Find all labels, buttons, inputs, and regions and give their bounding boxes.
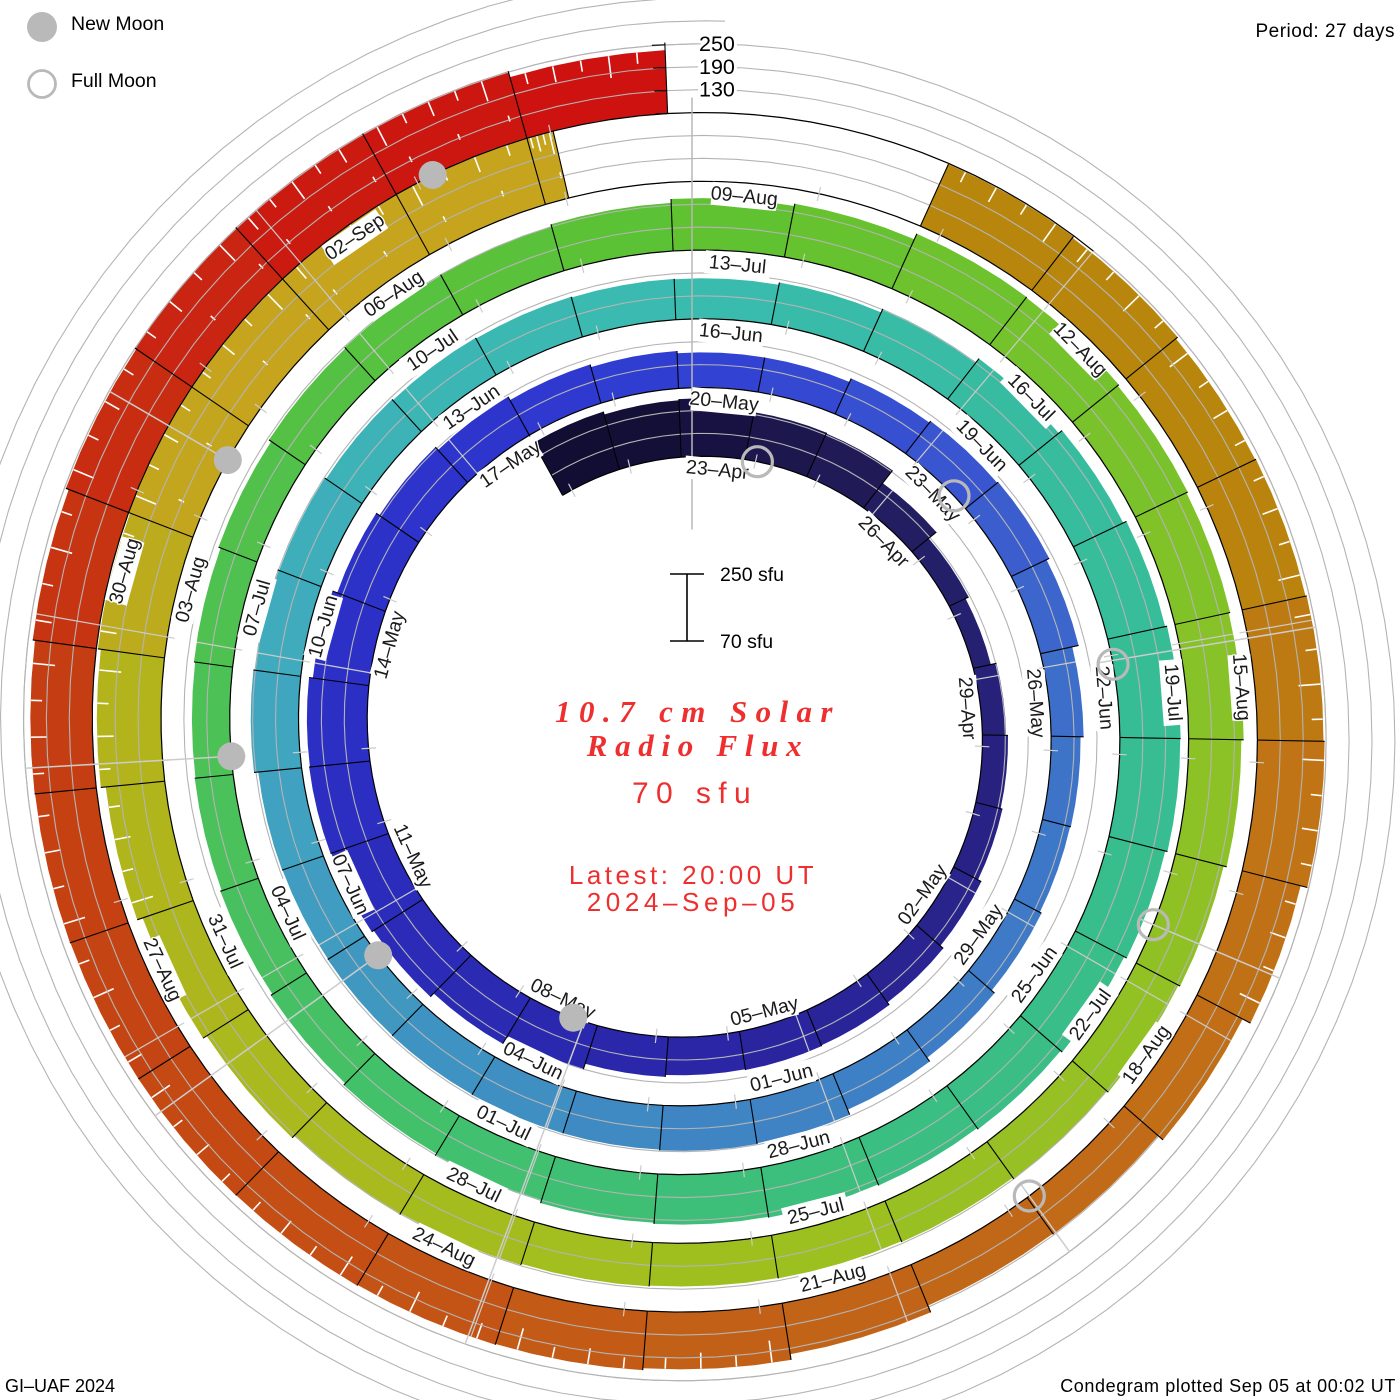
svg-text:GI–UAF 2024: GI–UAF 2024 — [5, 1376, 115, 1396]
svg-text:2024–Sep–05: 2024–Sep–05 — [587, 887, 800, 917]
svg-text:Period: 27 days: Period: 27 days — [1255, 21, 1395, 42]
svg-text:250: 250 — [699, 32, 735, 56]
svg-text:10.7 cm Solar: 10.7 cm Solar — [555, 694, 841, 729]
svg-text:70 sfu: 70 sfu — [720, 631, 773, 653]
svg-text:Latest: 20:00 UT: Latest: 20:00 UT — [569, 860, 817, 890]
svg-text:190: 190 — [699, 55, 735, 79]
svg-text:70 sfu: 70 sfu — [632, 777, 758, 810]
svg-text:Radio Flux: Radio Flux — [586, 728, 810, 763]
svg-text:19–Jul: 19–Jul — [1160, 663, 1186, 722]
svg-text:130: 130 — [699, 78, 735, 102]
svg-text:250 sfu: 250 sfu — [720, 564, 784, 586]
svg-text:Full Moon: Full Moon — [71, 70, 157, 92]
svg-text:New Moon: New Moon — [71, 13, 164, 35]
svg-text:Condegram plotted Sep 05 at 00: Condegram plotted Sep 05 at 00:02 UT — [1060, 1376, 1396, 1396]
